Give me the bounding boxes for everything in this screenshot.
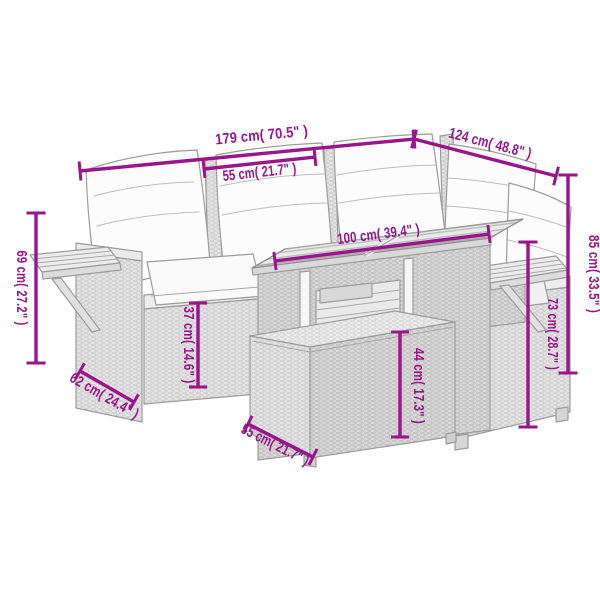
dimension-label: 37 cm( 14.6" ) bbox=[180, 307, 197, 384]
dimension-label: 85 cm( 33.5" ) bbox=[585, 235, 600, 313]
product-dimension-diagram: 179 cm( 70.5" ) 124 cm( 48.8" ) 55 cm( 2… bbox=[0, 0, 600, 600]
dimension-label: 69 cm( 27.2" ) bbox=[13, 251, 30, 326]
diagram-canvas: 179 cm( 70.5" ) 124 cm( 48.8" ) 55 cm( 2… bbox=[0, 0, 600, 600]
dimension-shelf-height: 69 cm( 27.2" ) bbox=[13, 213, 46, 363]
sofa-foot bbox=[455, 434, 468, 450]
sofa-foot bbox=[556, 407, 568, 422]
dimension-label: 73 cm( 28.7" ) bbox=[544, 298, 561, 370]
seat-cushion-left bbox=[147, 254, 264, 305]
dimension-label: 44 cm( 17.3" ) bbox=[410, 348, 427, 424]
furniture-illustration bbox=[30, 134, 571, 467]
stool-foot bbox=[446, 432, 456, 444]
